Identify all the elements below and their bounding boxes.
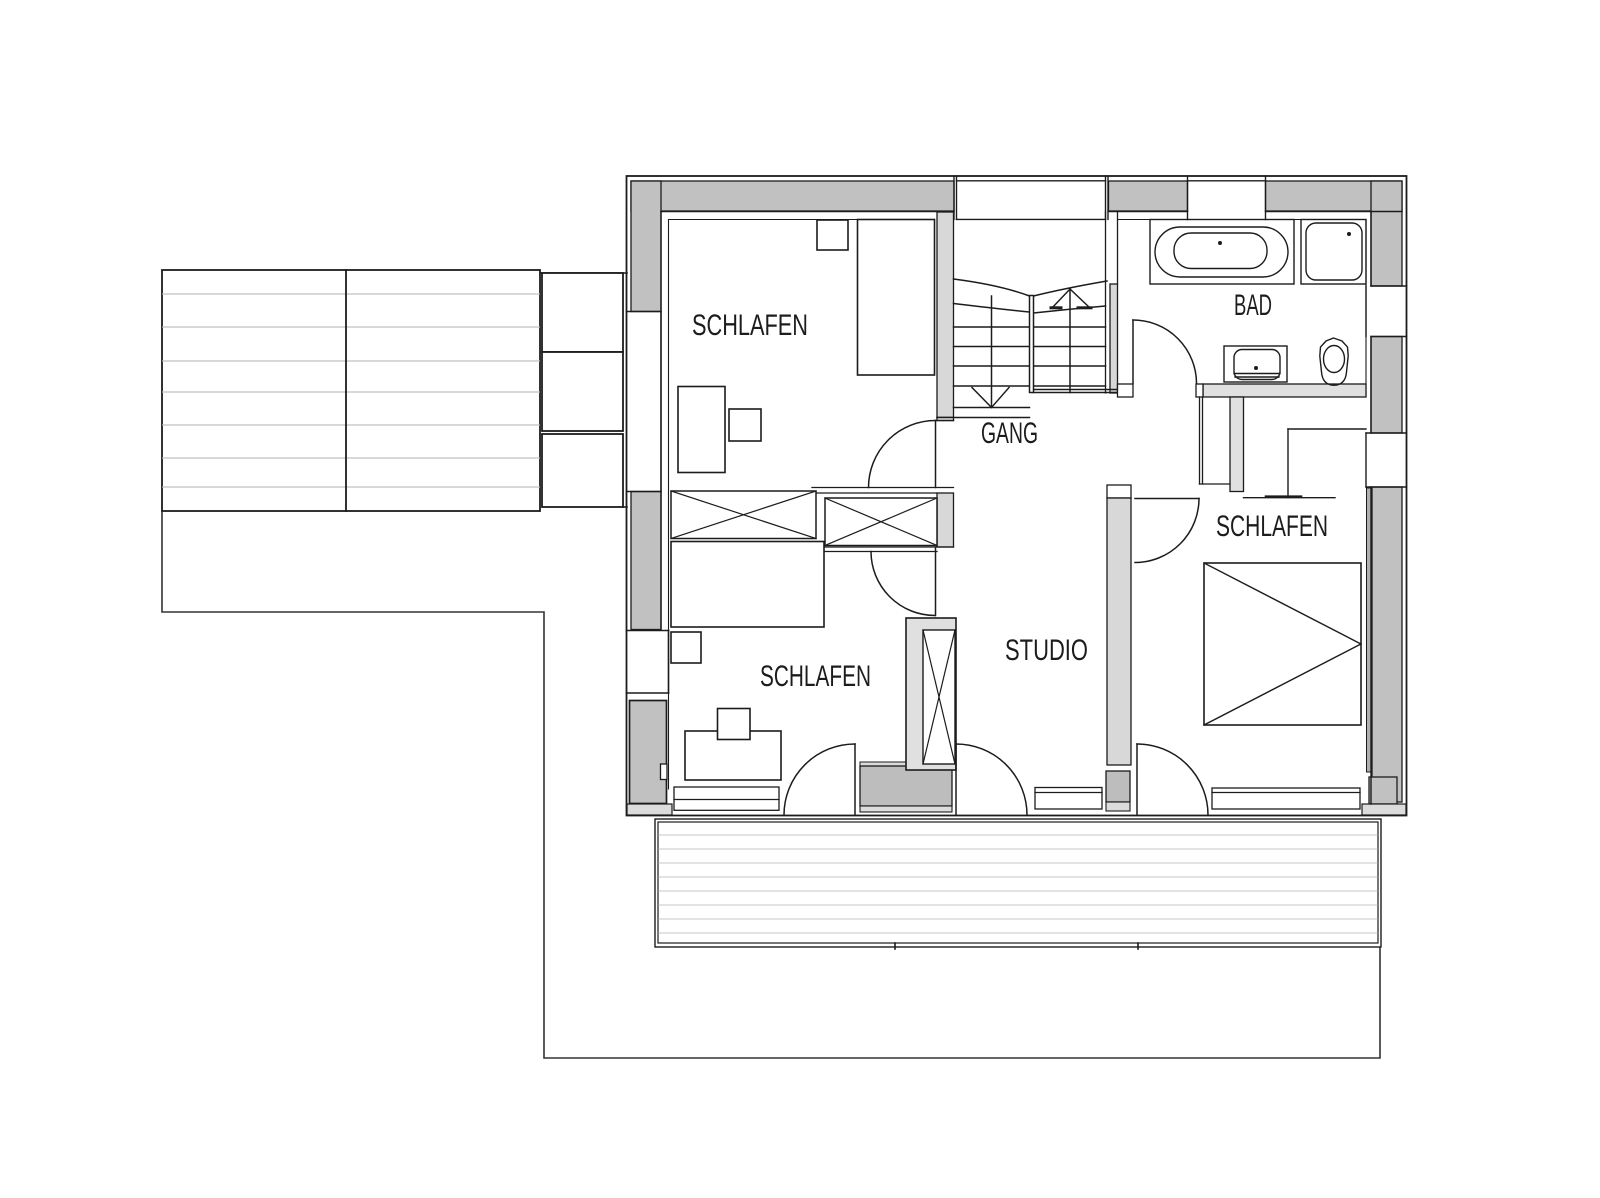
svg-text:GANG: GANG <box>981 417 1038 450</box>
svg-text:BAD: BAD <box>1234 289 1272 322</box>
svg-text:STUDIO: STUDIO <box>1005 634 1088 667</box>
svg-text:SCHLAFEN: SCHLAFEN <box>692 309 808 342</box>
svg-text:SCHLAFEN: SCHLAFEN <box>760 660 871 693</box>
svg-text:SCHLAFEN: SCHLAFEN <box>1216 510 1328 543</box>
